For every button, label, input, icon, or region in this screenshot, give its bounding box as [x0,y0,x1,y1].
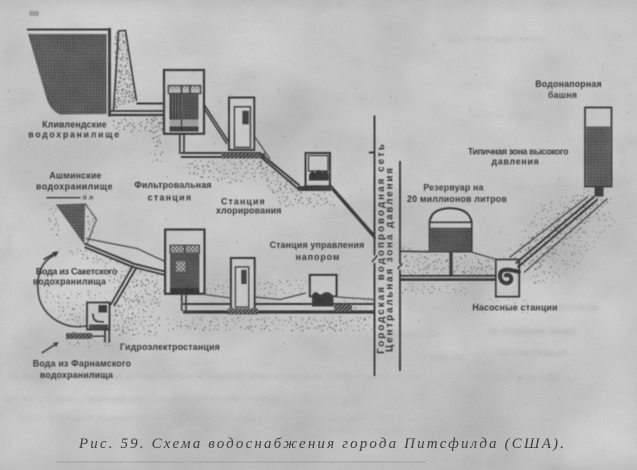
svg-text:башня: башня [548,90,577,100]
svg-text:водохранилища: водохранилища [33,277,106,287]
svg-text:водохранилища: водохранилища [40,370,113,380]
svg-text:Ашминские: Ашминские [49,171,101,181]
svg-text:водохранилище: водохранилище [36,181,113,191]
svg-text:водохранилище: водохранилище [28,129,121,139]
svg-text:п л: п л [83,195,93,202]
svg-text:Вода из Фарнамского: Вода из Фарнамского [33,359,132,369]
svg-text:Фильтровальная: Фильтровальная [134,180,212,190]
svg-text:Типичная зона высокого: Типичная зона высокого [468,147,569,157]
svg-text:Водонапорная: Водонапорная [535,79,602,89]
svg-text:напором: напором [296,252,341,262]
svg-text:Кливлендские: Кливлендские [42,120,107,130]
svg-text:Центральная зона давления: Центральная зона давления [385,166,396,352]
svg-text:Резервуар на: Резервуар на [423,182,483,192]
svg-text:Насосные станции: Насосные станции [472,303,557,313]
svg-text:Станция управления: Станция управления [270,240,365,250]
svg-text:станция: станция [148,192,193,202]
svg-text:давления: давления [492,156,540,166]
svg-text:20 миллионов литров: 20 миллионов литров [407,194,507,204]
svg-text:хлорирования: хлорирования [216,205,282,215]
svg-text:Вода из Сакетского: Вода из Сакетского [36,267,118,277]
svg-text:Гидроэлектростанция: Гидроэлектростанция [120,342,220,352]
